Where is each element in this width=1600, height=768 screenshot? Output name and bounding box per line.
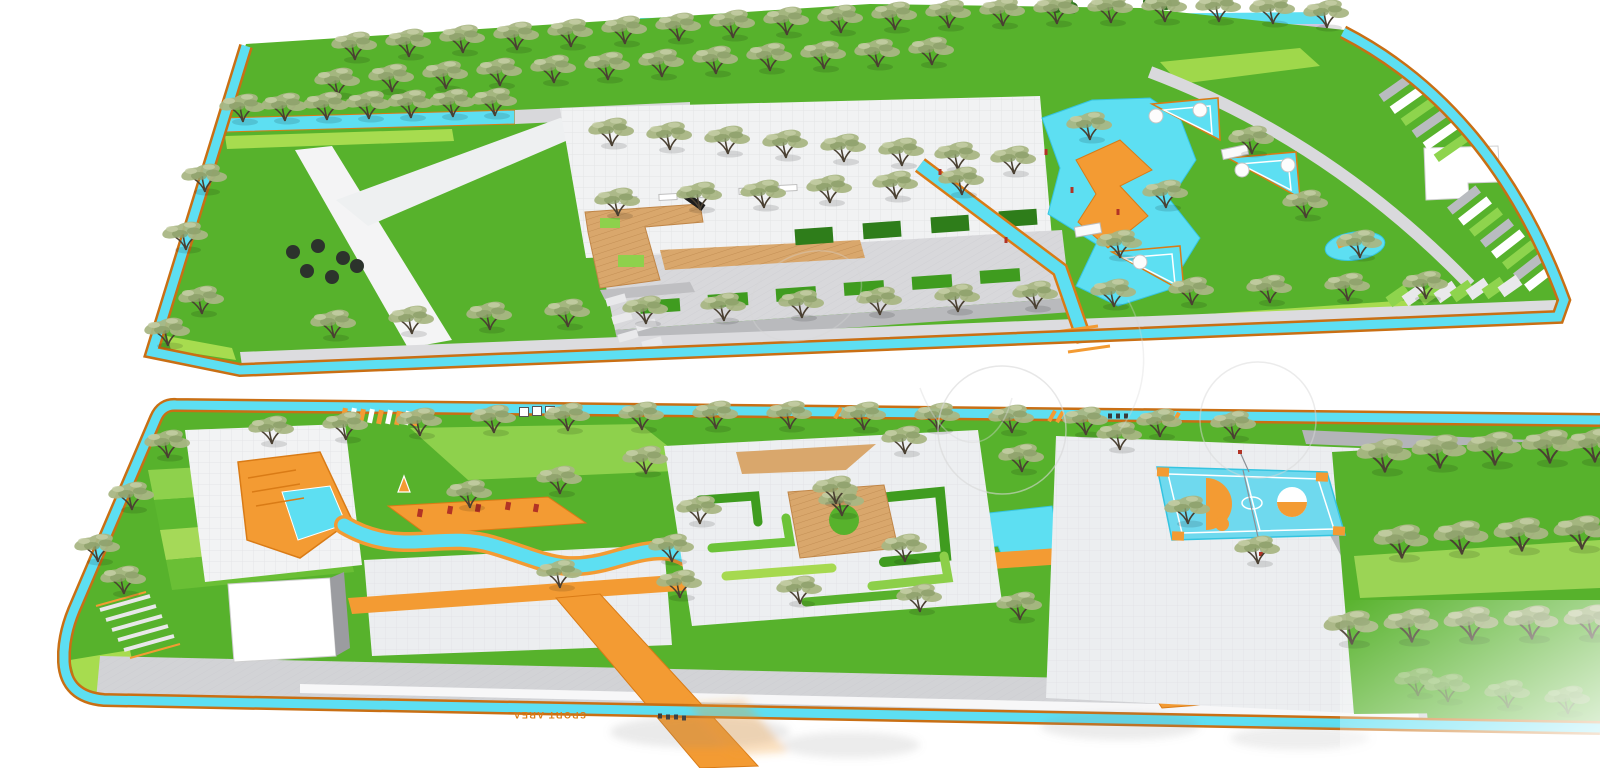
sphere-sculpture — [1235, 163, 1249, 177]
person-figure — [1117, 209, 1120, 215]
reflection-smudge — [780, 732, 920, 758]
tree-planter — [930, 215, 969, 234]
court-corner — [1316, 472, 1328, 481]
deck-planter — [618, 255, 644, 267]
deck-planter — [600, 218, 620, 228]
pavilion-building — [228, 572, 350, 662]
shrub-dot — [336, 251, 350, 265]
plan-rendering: SPORT AREA — [0, 0, 1600, 768]
sphere-sculpture — [1193, 103, 1207, 117]
upper-park-plan — [143, 0, 1566, 370]
low-planter — [912, 274, 953, 290]
shrub-dot — [300, 264, 314, 278]
vignette-fade — [1340, 600, 1600, 768]
sport-area-label: SPORT AREA — [512, 710, 586, 720]
tiny-glyph — [1116, 414, 1120, 419]
court-spot — [1215, 517, 1229, 531]
person-figure — [939, 169, 942, 175]
sphere-sculpture — [1133, 255, 1147, 269]
strip-icon — [533, 407, 542, 416]
person-figure — [1045, 149, 1048, 155]
court-corner — [1172, 531, 1184, 540]
bench — [659, 194, 677, 201]
low-planter — [980, 268, 1021, 284]
maze-garden — [664, 430, 1002, 626]
shrub-dot — [325, 270, 339, 284]
plan-canvas: SPORT AREA — [0, 0, 1600, 768]
court-corner — [1333, 526, 1345, 535]
reflection-smudge — [1040, 712, 1200, 740]
tree-planter — [794, 227, 833, 246]
tree-planter — [862, 221, 901, 240]
sphere-sculpture — [1149, 109, 1163, 123]
person-figure — [1071, 187, 1074, 193]
sphere-sculpture — [1281, 158, 1295, 172]
building-roof — [228, 578, 336, 662]
strip-icon — [520, 408, 529, 417]
shrub-dot — [350, 259, 364, 273]
shrub-dot — [286, 245, 300, 259]
tiny-glyph — [1108, 414, 1112, 419]
shrub-dot — [311, 239, 325, 253]
court-post-cap — [1238, 450, 1242, 454]
person-figure — [1005, 237, 1008, 243]
court-corner — [1157, 467, 1169, 476]
